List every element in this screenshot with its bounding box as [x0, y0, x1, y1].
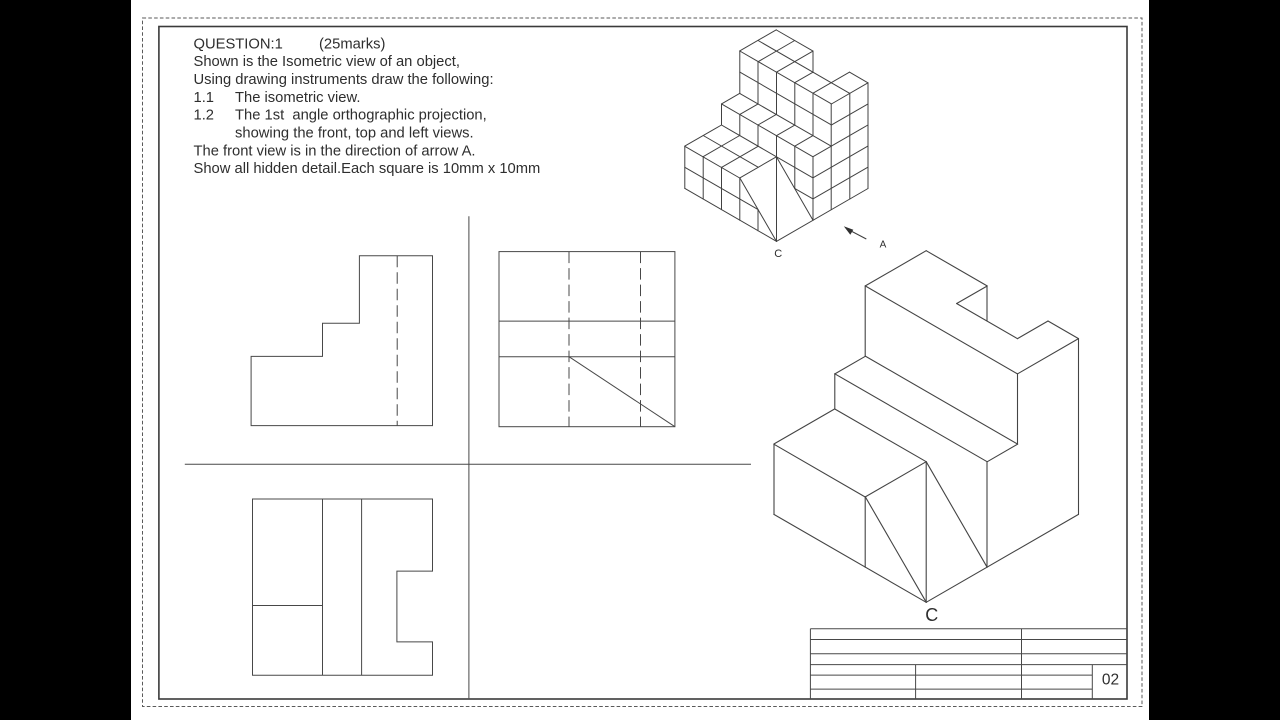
- svg-text:C: C: [774, 248, 782, 260]
- svg-text:The 1st angle orthographic pr: The 1st angle orthographic projection,: [235, 108, 487, 124]
- svg-text:A: A: [880, 240, 887, 251]
- svg-text:showing the front, top and lef: showing the front, top and left views.: [235, 126, 474, 142]
- svg-text:Show all hidden detail.Each sq: Show all hidden detail.Each square is 10…: [194, 161, 541, 177]
- svg-text:Using drawing instruments draw: Using drawing instruments draw the follo…: [194, 72, 494, 88]
- svg-text:02: 02: [1102, 671, 1119, 688]
- svg-text:C: C: [925, 605, 938, 625]
- svg-text:The front view is in the direc: The front view is in the direction of ar…: [194, 143, 476, 159]
- svg-text:The isometric view.: The isometric view.: [235, 90, 360, 106]
- svg-text:1.2: 1.2: [194, 108, 215, 124]
- svg-text:QUESTION:1: QUESTION:1: [194, 36, 283, 52]
- svg-text:1.1: 1.1: [194, 90, 215, 106]
- svg-text:Shown is the Isometric view of: Shown is the Isometric view of an object…: [194, 54, 460, 70]
- svg-text:(25marks): (25marks): [319, 36, 385, 52]
